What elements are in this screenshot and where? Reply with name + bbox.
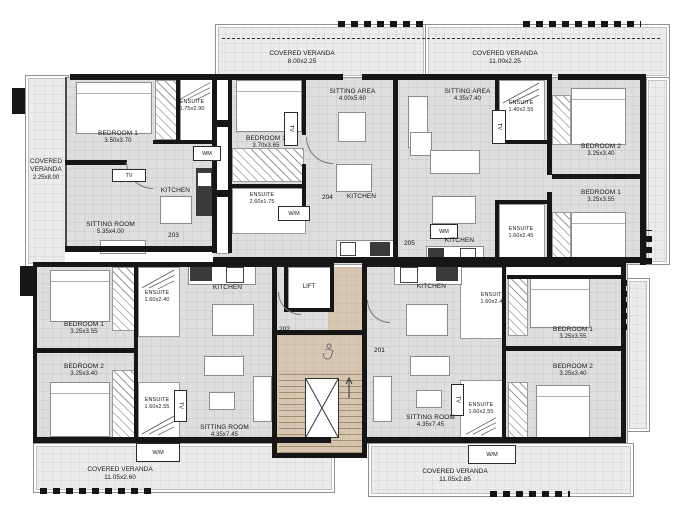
room-label-kitchen-202: KITCHEN bbox=[200, 284, 255, 292]
room-label-sitting-201: SITTING ROOM4.35x7.45 bbox=[378, 414, 483, 430]
bed-202-br1 bbox=[50, 270, 110, 322]
wall bbox=[362, 437, 626, 443]
wardrobe-201a bbox=[508, 278, 528, 336]
unit-number-202: 202 bbox=[279, 326, 290, 333]
room-label-ensuite-201-top: ENSUITE1.60x2.45 bbox=[464, 292, 522, 306]
stove-203 bbox=[197, 172, 212, 187]
wall bbox=[558, 74, 646, 80]
wall-pier bbox=[20, 266, 33, 296]
wall-pier bbox=[216, 190, 228, 197]
dashed-wall bbox=[621, 280, 627, 330]
wall bbox=[552, 174, 642, 179]
dining-table-205 bbox=[432, 196, 476, 224]
wall bbox=[362, 74, 552, 80]
wm-tag-203: WM bbox=[193, 146, 221, 161]
wardrobe-205b bbox=[552, 212, 571, 262]
room-label-sitting-202: SITTING ROOM4.35x7.45 bbox=[172, 424, 277, 440]
wm-tag-204: W/M bbox=[278, 206, 310, 221]
sofa-201 bbox=[410, 356, 450, 376]
room-label-kitchen-204: KITCHEN bbox=[334, 193, 389, 201]
wall bbox=[228, 77, 232, 253]
wall bbox=[505, 346, 626, 351]
wall bbox=[65, 160, 127, 165]
room-label-ensuite-205-top: ENSUITE1.40x2.55 bbox=[497, 100, 545, 114]
floor-plan: COVEREDVERANDA2.25x8.00 COVERED VERANDA8… bbox=[0, 0, 678, 532]
room-label-ensuite-205-bottom: ENSUITE1.60x2.45 bbox=[497, 226, 545, 240]
console-202 bbox=[253, 376, 272, 422]
wall bbox=[547, 77, 552, 175]
unit-number-204: 204 bbox=[322, 194, 333, 201]
fridge-204 bbox=[370, 242, 390, 256]
wall bbox=[495, 200, 547, 204]
room-label-bedroom2-201: BEDROOM 23.25x3.40 bbox=[533, 363, 613, 379]
tv-tag-205: TV bbox=[492, 110, 506, 144]
wm-tag-201: W/M bbox=[468, 445, 516, 464]
room-label-bedroom2-202: BEDROOM 23.25x3.40 bbox=[44, 363, 124, 379]
unit-number-201: 201 bbox=[374, 347, 385, 354]
veranda-open-edge bbox=[222, 38, 660, 39]
dashed-wall bbox=[40, 488, 152, 494]
wall bbox=[134, 346, 138, 440]
room-label-kitchen-201: KITCHEN bbox=[404, 283, 459, 291]
wardrobe-205a bbox=[552, 95, 571, 145]
room-label-ensuite-202-bottom: ENSUITE1.60x2.55 bbox=[128, 397, 186, 411]
room-label-ensuite-204: ENSUITE2.60x1.75 bbox=[232, 192, 292, 206]
stair-up-arrow-icon bbox=[344, 376, 354, 400]
rug-201 bbox=[416, 390, 442, 408]
unit-number-203: 203 bbox=[168, 232, 179, 239]
sink-204 bbox=[340, 242, 356, 256]
room-label-bedroom1-204: BEDROOM 13.70x3.65 bbox=[226, 135, 306, 151]
room-label-kitchen-203: KITCHEN bbox=[148, 187, 203, 195]
wall bbox=[277, 330, 366, 335]
veranda-top-right-label: COVERED VERANDA11.00x2.25 bbox=[445, 50, 565, 67]
rug-205 bbox=[410, 132, 432, 156]
bed-201-br2 bbox=[536, 385, 590, 439]
veranda-bottom-right-label: COVERED VERANDA11.05x2.85 bbox=[390, 468, 520, 485]
wall bbox=[502, 346, 506, 440]
room-label-kitchen-205: KITCHEN bbox=[432, 237, 487, 245]
wall bbox=[230, 184, 306, 188]
dashed-wall bbox=[523, 21, 641, 27]
wall bbox=[362, 262, 367, 458]
veranda-left-label: COVEREDVERANDA2.25x8.00 bbox=[25, 158, 67, 183]
accessible-icon bbox=[320, 342, 338, 360]
wall bbox=[393, 77, 398, 263]
stair-void bbox=[305, 378, 339, 438]
wall bbox=[330, 262, 334, 312]
bed-202-br2 bbox=[50, 382, 110, 437]
stair-cross-icon bbox=[306, 379, 338, 437]
shower-lines-icon bbox=[140, 414, 176, 436]
wall bbox=[277, 453, 366, 458]
dashed-wall bbox=[490, 491, 570, 497]
wall bbox=[33, 348, 137, 353]
veranda-top-middle-label: COVERED VERANDA8.00x2.25 bbox=[242, 50, 362, 67]
bed-203 bbox=[76, 82, 152, 134]
rug-204 bbox=[338, 112, 366, 142]
stove-202 bbox=[226, 267, 244, 283]
wall-pier bbox=[12, 88, 25, 114]
room-label-ensuite-203: ENSUITE1.75x2.90 bbox=[162, 99, 222, 113]
dashed-wall bbox=[646, 230, 652, 264]
room-label-bedroom1-201: BEDROOM 13.25x3.55 bbox=[533, 326, 613, 342]
shower-lines-icon bbox=[140, 268, 176, 290]
wardrobe-201b bbox=[508, 382, 528, 440]
fridge-201 bbox=[436, 267, 458, 281]
wall bbox=[302, 77, 306, 135]
sofa-205 bbox=[430, 150, 480, 174]
wall bbox=[362, 262, 626, 267]
wardrobe-204 bbox=[232, 148, 304, 182]
dining-table-203 bbox=[160, 196, 192, 224]
wall bbox=[507, 275, 626, 279]
room-label-bedroom1-202: BEDROOM 13.25x3.55 bbox=[44, 321, 124, 337]
room-label-sitting-203: SITTING ROOM5.35x4.00 bbox=[58, 221, 163, 237]
room-label-bedroom1-203: BEDROOM 13.50x3.70 bbox=[68, 130, 168, 146]
sofa-202 bbox=[204, 356, 244, 376]
wall-pier bbox=[216, 120, 228, 127]
room-label-ensuite-202-top: ENSUITE1.60x2.40 bbox=[128, 290, 186, 304]
bed-201-br1 bbox=[530, 278, 590, 328]
dining-table-202 bbox=[212, 304, 254, 336]
veranda-bottom-right-strip bbox=[626, 278, 650, 432]
room-label-bedroom1-205: BEDROOM 13.25x3.55 bbox=[562, 189, 640, 205]
tv-tag-203: TV bbox=[112, 169, 146, 182]
stove-201 bbox=[400, 267, 418, 283]
fridge-202 bbox=[190, 267, 212, 281]
bed-205-br2 bbox=[571, 88, 626, 145]
dining-table-201 bbox=[406, 304, 448, 336]
veranda-bottom-left-label: COVERED VERANDA11.05x2.60 bbox=[45, 466, 195, 483]
unit-number-205: 205 bbox=[404, 240, 415, 247]
wall bbox=[134, 262, 138, 346]
dashed-wall bbox=[338, 21, 426, 27]
wm-tag-202: W/M bbox=[136, 443, 180, 462]
room-label-sitting-204: SITTING AREA4.00x5.60 bbox=[305, 88, 400, 104]
room-label-bedroom2-205: BEDROOM 23.25x3.40 bbox=[562, 143, 640, 159]
wall bbox=[547, 192, 552, 263]
wall bbox=[65, 246, 215, 252]
rug-202 bbox=[209, 392, 235, 410]
dining-table-204 bbox=[336, 164, 372, 192]
